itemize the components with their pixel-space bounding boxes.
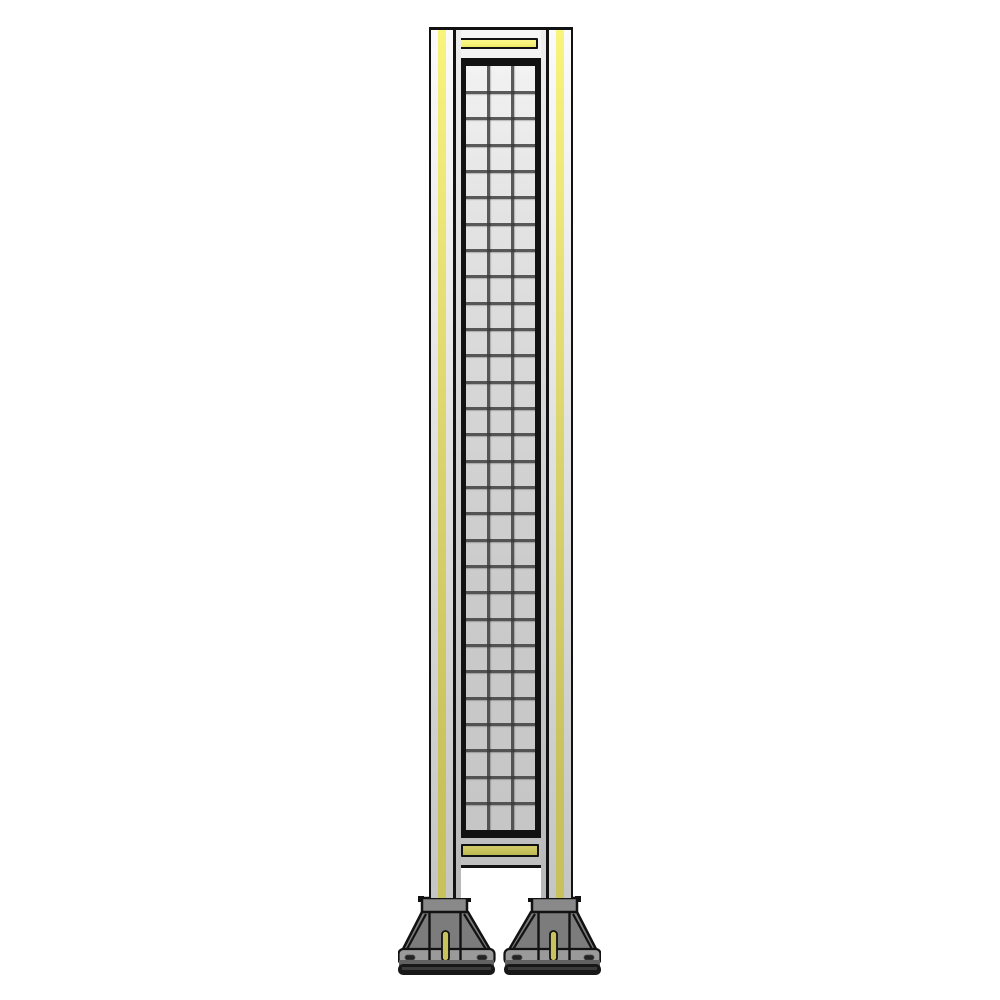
mesh-wire-horizontal — [466, 302, 535, 305]
mesh-wire-horizontal — [466, 275, 535, 278]
mesh-wire-horizontal — [466, 776, 535, 779]
mesh-wire-horizontal — [466, 328, 535, 331]
post-face — [549, 27, 556, 898]
post-face — [431, 27, 438, 898]
mesh-wire-vertical — [511, 66, 514, 830]
mesh-wire-horizontal — [466, 117, 535, 120]
mesh-wire-horizontal — [466, 91, 535, 94]
mesh-wire-horizontal — [466, 170, 535, 173]
mesh-wire-horizontal — [466, 144, 535, 147]
mesh-wire-horizontal — [466, 381, 535, 384]
bottom-rail-yellow-insert — [461, 844, 539, 857]
mesh-wire-horizontal — [466, 249, 535, 252]
mesh-wire-horizontal — [466, 749, 535, 752]
top-cap-edge — [429, 27, 573, 30]
mesh-wire-horizontal — [466, 354, 535, 357]
post-face — [564, 27, 571, 898]
anchor-slot — [550, 931, 557, 961]
fence-panel-render — [0, 0, 1000, 1000]
foot-graphic — [398, 896, 496, 976]
between-legs-opening — [461, 868, 541, 898]
mesh-wire-horizontal — [466, 539, 535, 542]
bolt-slot — [512, 955, 522, 960]
right-mounting-foot — [503, 896, 601, 976]
base-plate-bottom-highlight — [508, 967, 597, 970]
bolt-slot — [477, 955, 487, 960]
mesh-wire-horizontal — [466, 618, 535, 621]
mesh-wire-horizontal — [466, 486, 535, 489]
mesh-window-frame — [460, 58, 541, 838]
mesh-wire-horizontal — [466, 565, 535, 568]
post-yellow-stripe — [438, 27, 446, 898]
mesh-wire-horizontal — [466, 407, 535, 410]
left-upright-post — [429, 27, 461, 898]
top-rail-yellow-insert — [457, 38, 538, 49]
post-face — [446, 27, 453, 898]
base-plate-bottom-highlight — [402, 967, 491, 970]
mesh-wire-horizontal — [466, 223, 535, 226]
post-outer-edge — [571, 27, 573, 898]
wire-mesh-grid — [466, 66, 535, 830]
mesh-wire-vertical — [487, 66, 490, 830]
mesh-wire-horizontal — [466, 196, 535, 199]
mesh-wire-horizontal — [466, 644, 535, 647]
foot-graphic — [503, 896, 601, 976]
bolt-slot — [584, 955, 594, 960]
post-inner-face — [456, 27, 461, 898]
anchor-slot — [442, 931, 449, 961]
mesh-wire-horizontal — [466, 802, 535, 805]
mesh-wire-horizontal — [466, 670, 535, 673]
mesh-wire-horizontal — [466, 723, 535, 726]
mesh-wire-horizontal — [466, 460, 535, 463]
left-mounting-foot — [398, 896, 496, 976]
mesh-wire-horizontal — [466, 433, 535, 436]
right-upright-post — [541, 27, 573, 898]
mesh-wire-horizontal — [466, 697, 535, 700]
mesh-wire-horizontal — [466, 591, 535, 594]
mesh-wire-horizontal — [466, 512, 535, 515]
post-yellow-stripe — [556, 27, 564, 898]
bolt-slot — [405, 955, 415, 960]
